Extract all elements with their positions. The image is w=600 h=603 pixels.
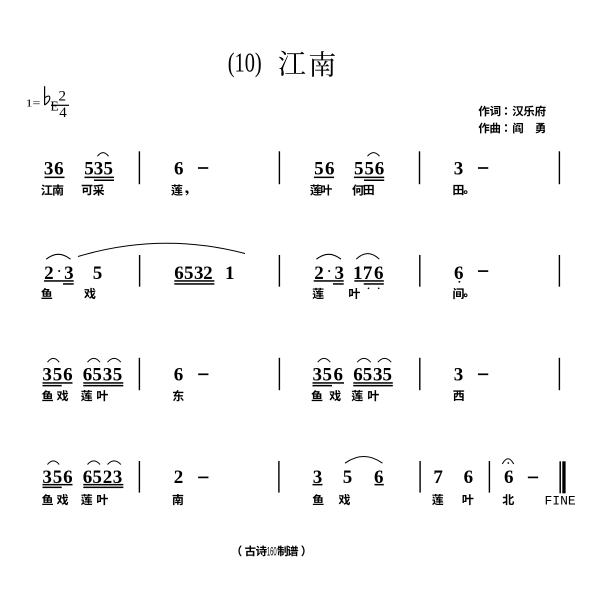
- svg-text:2: 2: [59, 89, 67, 105]
- svg-text:3: 3: [94, 159, 104, 180]
- svg-text:6: 6: [174, 159, 184, 180]
- svg-text:6: 6: [504, 467, 514, 488]
- svg-text:6: 6: [325, 159, 335, 180]
- svg-text:1: 1: [225, 263, 235, 284]
- svg-text:6: 6: [375, 159, 385, 180]
- svg-text:5: 5: [103, 159, 113, 180]
- svg-text:E: E: [50, 99, 58, 114]
- svg-text:6: 6: [454, 263, 464, 284]
- svg-text:4: 4: [59, 105, 67, 121]
- svg-text:(10): (10): [228, 48, 262, 78]
- svg-text:7: 7: [433, 467, 443, 488]
- svg-text:6: 6: [54, 159, 64, 180]
- svg-text:5: 5: [84, 159, 94, 180]
- svg-text:6: 6: [464, 467, 474, 488]
- svg-text:5: 5: [354, 159, 364, 180]
- svg-text:3: 3: [454, 159, 464, 180]
- svg-text:6: 6: [174, 365, 184, 386]
- svg-text:5: 5: [314, 159, 324, 180]
- svg-text:5: 5: [365, 159, 375, 180]
- svg-text:160: 160: [267, 546, 277, 558]
- svg-text:2: 2: [174, 467, 184, 488]
- svg-text:3: 3: [454, 365, 464, 386]
- svg-text:FINE: FINE: [545, 494, 576, 509]
- svg-text:3: 3: [44, 159, 54, 180]
- svg-text:1=: 1=: [26, 99, 41, 110]
- svg-text:5: 5: [343, 467, 353, 488]
- svg-text:5: 5: [93, 263, 103, 284]
